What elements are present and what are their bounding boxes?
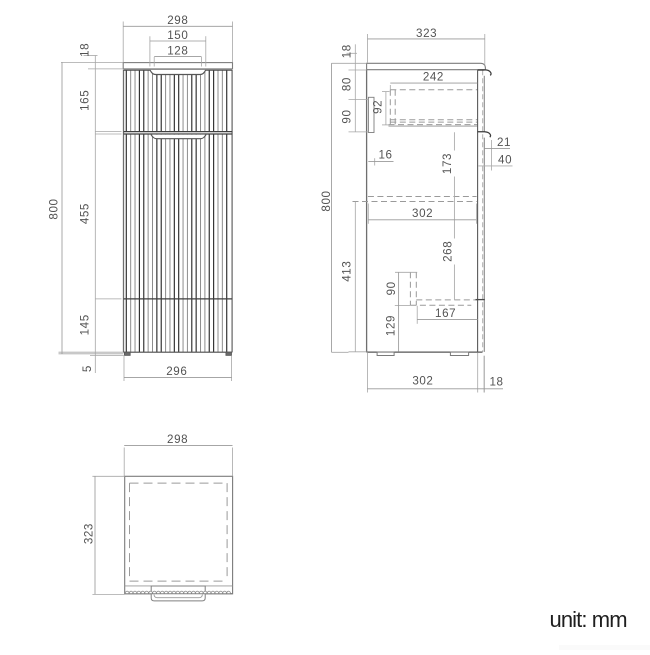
svg-text:800: 800 [48,198,61,219]
svg-text:323: 323 [83,523,96,544]
svg-text:unit: mm: unit: mm [550,607,627,632]
svg-text:90: 90 [341,109,354,123]
svg-text:268: 268 [441,241,454,262]
svg-text:18: 18 [341,44,354,58]
svg-text:296: 296 [166,365,187,378]
svg-text:167: 167 [435,307,456,320]
svg-text:323: 323 [416,27,437,40]
svg-text:150: 150 [167,29,188,42]
svg-text:455: 455 [79,203,92,224]
svg-text:302: 302 [412,207,433,220]
svg-text:298: 298 [167,433,188,446]
svg-text:145: 145 [79,314,92,335]
svg-text:21: 21 [497,136,511,149]
svg-text:302: 302 [412,374,433,387]
svg-text:173: 173 [441,153,454,174]
svg-text:298: 298 [167,14,188,27]
svg-text:92: 92 [372,100,385,114]
svg-text:5: 5 [81,365,94,372]
svg-text:18: 18 [79,43,92,57]
svg-text:129: 129 [385,315,398,336]
svg-text:128: 128 [167,44,188,57]
svg-text:16: 16 [378,149,392,162]
svg-text:80: 80 [341,77,354,91]
svg-text:18: 18 [489,375,503,388]
svg-text:413: 413 [341,261,354,282]
svg-text:90: 90 [385,281,398,295]
svg-text:800: 800 [320,190,333,211]
svg-text:165: 165 [79,90,92,111]
svg-text:40: 40 [498,153,512,166]
svg-text:242: 242 [423,71,444,84]
